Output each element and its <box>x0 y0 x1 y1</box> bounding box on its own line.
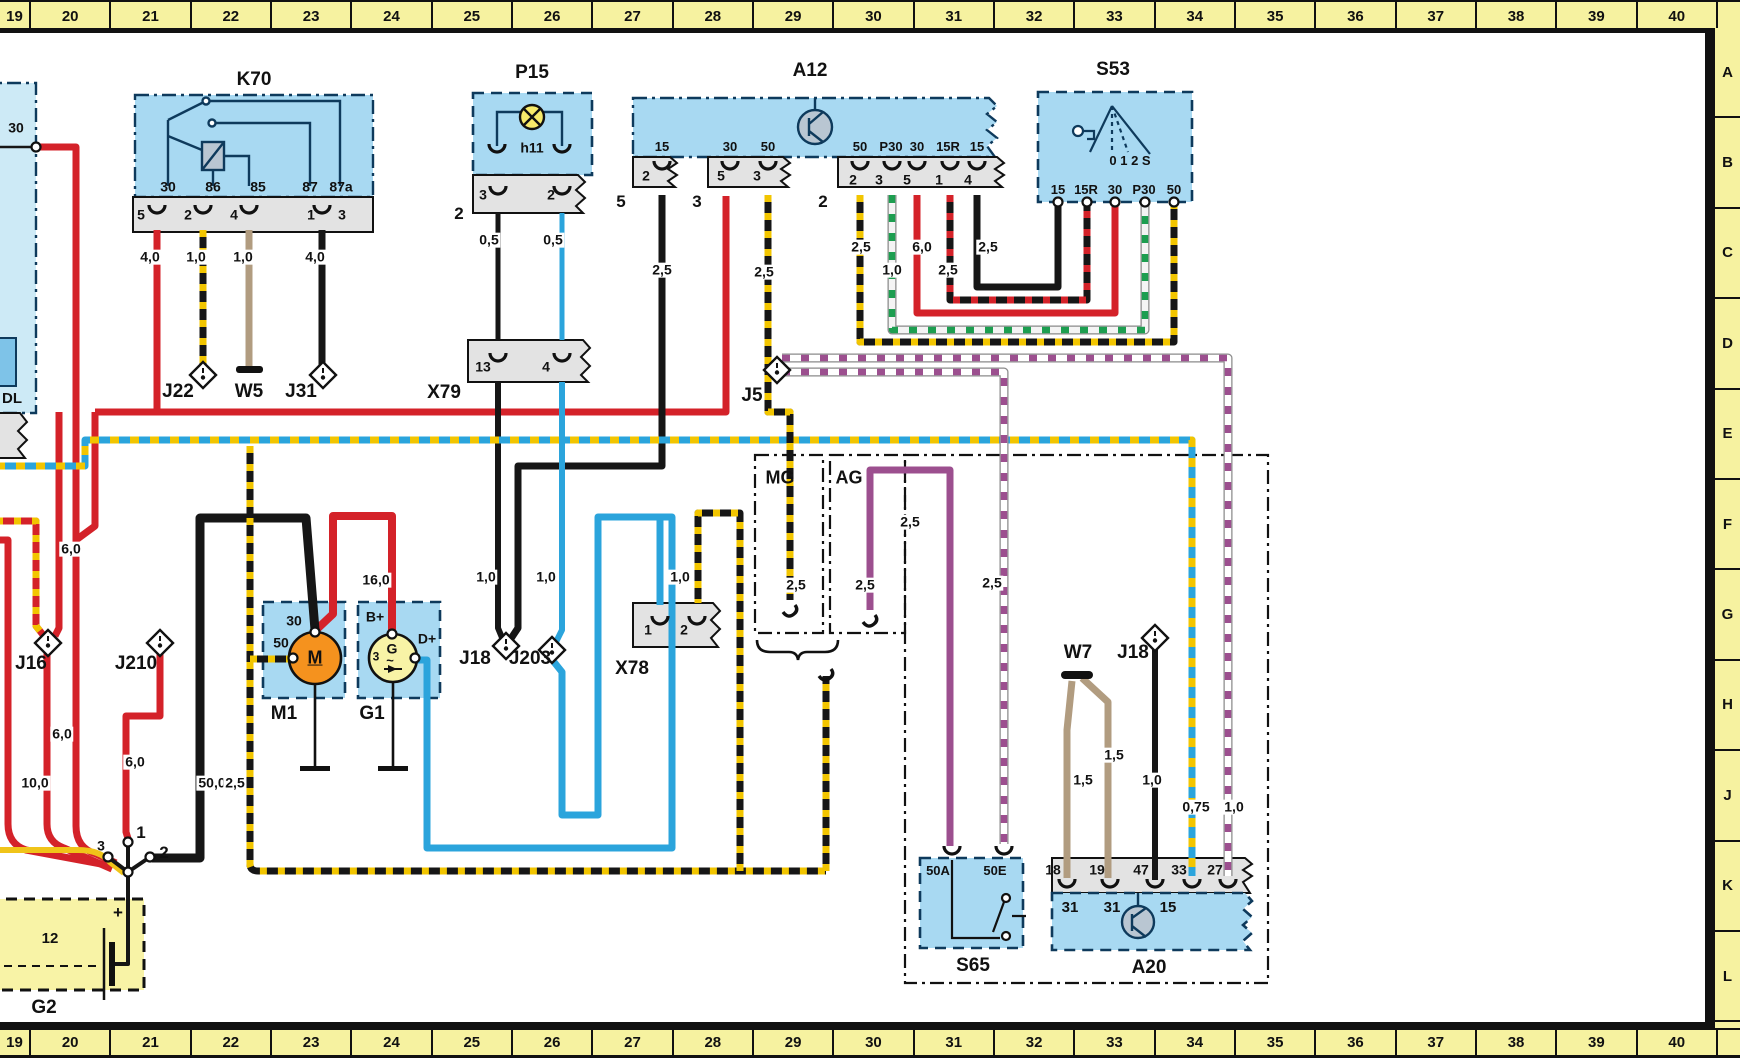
m1-terminal-30: 30 <box>286 614 302 629</box>
x79-label: X79 <box>427 383 461 403</box>
ruler-row-J: J <box>1715 751 1740 841</box>
frame-right <box>1705 28 1712 1028</box>
ruler-cell-27: 27 <box>593 2 673 30</box>
ruler-cell-30: 30 <box>834 2 914 30</box>
ruler-cell-26: 26 <box>513 2 593 30</box>
ruler-cell-35: 35 <box>1236 2 1316 30</box>
j18-label: J18 <box>459 649 491 669</box>
ruler-cell-21: 21 <box>111 1030 191 1055</box>
k70-pin-5: 5 <box>137 208 145 223</box>
s53-terminal-50: 50 <box>1167 183 1181 197</box>
ruler-cell-23: 23 <box>272 2 352 30</box>
ruler-cell-27: 27 <box>593 1030 673 1055</box>
ruler-cell-37: 37 <box>1397 2 1477 30</box>
j203-label: J203 <box>509 649 551 669</box>
x78-pin-1: 1 <box>644 623 652 638</box>
k70-terminal-87: 87 <box>302 180 318 195</box>
p15-pin-2: 2 <box>547 188 555 203</box>
ruler-cell-28: 28 <box>674 2 754 30</box>
junction-pin-1: 1 <box>136 824 145 842</box>
ruler-row-L: L <box>1715 932 1740 1022</box>
a12-connector-5: 5 <box>616 193 625 211</box>
a12-pin-4: 4 <box>964 173 972 188</box>
a12-terminal-30a: 30 <box>723 140 737 154</box>
gauge-50e-wire: 2,5 <box>980 576 1003 591</box>
a12-terminal-50a: 50 <box>761 140 775 154</box>
ruler-cell-19: 19 <box>0 1030 31 1055</box>
mg-label: MG <box>766 469 795 488</box>
k70-title: K70 <box>237 70 272 90</box>
ruler-cell-28: 28 <box>674 1030 754 1055</box>
a12-connector-3: 3 <box>692 193 701 211</box>
gauge-left-a: 6,0 <box>59 542 82 557</box>
ruler-cell-23: 23 <box>272 1030 352 1055</box>
frame-bottom <box>0 1022 1712 1028</box>
ruler-cell-36: 36 <box>1316 2 1396 30</box>
ruler-cell-21: 21 <box>111 2 191 30</box>
ruler-row-A: A <box>1715 28 1740 118</box>
k70-terminal-86: 86 <box>205 180 221 195</box>
a20-label: A20 <box>1132 958 1167 978</box>
gauge-a12-50a: 2,5 <box>752 265 775 280</box>
gauge-a20-33: 0,75 <box>1180 800 1211 815</box>
ruler-cell-38: 38 <box>1477 1030 1557 1055</box>
k70-terminal-87a: 87a <box>329 180 352 195</box>
a20-terminal-31a: 31 <box>1062 900 1079 916</box>
ruler-corner <box>1718 1030 1740 1055</box>
a20-terminal-15: 15 <box>1160 900 1177 916</box>
s53-terminal-15r: 15R <box>1074 183 1098 197</box>
gauge-j18-wire: 1,0 <box>474 570 497 585</box>
labels-layer: K70P15A12S53X79X78J22W5J31J5J16J210J18J2… <box>0 0 1740 1053</box>
a20-pin-47: 47 <box>1133 863 1149 878</box>
ruler-cell-26: 26 <box>513 1030 593 1055</box>
a12-pin-2b: 2 <box>849 173 857 188</box>
gauge-a20-27: 1,0 <box>1222 800 1245 815</box>
a20-terminal-31b: 31 <box>1104 900 1121 916</box>
gauge-k70-85: 1,0 <box>231 250 254 265</box>
k70-terminal-30: 30 <box>160 180 176 195</box>
gauge-a12-30b: 6,0 <box>910 240 933 255</box>
s53-terminal-p30: P30 <box>1132 183 1155 197</box>
ruler-corner <box>1718 2 1740 30</box>
ruler-cell-33: 33 <box>1075 1030 1155 1055</box>
gauge-a12-15a: 2,5 <box>650 263 673 278</box>
ruler-cell-39: 39 <box>1557 1030 1637 1055</box>
gauge-k70-86: 1,0 <box>184 250 207 265</box>
k70-pin-1: 1 <box>307 208 315 223</box>
x78-label: X78 <box>615 659 649 679</box>
gauge-w7-left: 1,5 <box>1071 773 1094 788</box>
j22-label: J22 <box>162 382 194 402</box>
g1-sine: ~ <box>386 654 394 668</box>
a12-terminal-15r: 15R <box>936 140 960 154</box>
g2-label: G2 <box>31 998 56 1018</box>
gauge-purple-wire: 2,5 <box>898 515 921 530</box>
bottom-ruler: 1920212223242526272829303132333435363738… <box>0 1028 1740 1058</box>
a20-pin-33: 33 <box>1171 863 1187 878</box>
a12-terminal-15a: 15 <box>655 140 669 154</box>
gauge-a12-15r: 2,5 <box>936 263 959 278</box>
j18b-label: J18 <box>1117 643 1149 663</box>
ag-label: AG <box>836 469 863 488</box>
j5-label: J5 <box>741 386 762 406</box>
ruler-row-F: F <box>1715 480 1740 570</box>
ruler-row-H: H <box>1715 661 1740 751</box>
gauge-p15-2: 0,5 <box>541 233 564 248</box>
gauge-left-b: 6,0 <box>50 727 73 742</box>
ruler-cell-24: 24 <box>352 2 432 30</box>
a12-pin-5a: 5 <box>717 169 725 184</box>
ruler-row-E: E <box>1715 390 1740 480</box>
p15-title: P15 <box>515 63 549 83</box>
gauge-p15-3: 0,5 <box>477 233 500 248</box>
a12-pin-3a: 3 <box>753 169 761 184</box>
a20-pin-27: 27 <box>1207 863 1223 878</box>
ruler-cell-40: 40 <box>1638 2 1718 30</box>
a20-pin-18: 18 <box>1045 863 1061 878</box>
ruler-cell-31: 31 <box>915 2 995 30</box>
w5-label: W5 <box>235 382 264 402</box>
wiring-diagram-page: { "meta":{"type":"automotive wiring diag… <box>0 0 1740 1053</box>
g1-pin-3: 3 <box>373 651 380 664</box>
p15-pin-3: 3 <box>479 188 487 203</box>
g1-label: G1 <box>359 704 384 724</box>
ruler-cell-36: 36 <box>1316 1030 1396 1055</box>
ruler-cell-29: 29 <box>754 1030 834 1055</box>
battery-plus: + <box>113 904 123 922</box>
ruler-cell-19: 19 <box>0 2 31 30</box>
battery-voltage: 12 <box>42 931 59 947</box>
p15-connector-2: 2 <box>454 205 463 223</box>
ruler-cell-29: 29 <box>754 2 834 30</box>
s53-title: S53 <box>1096 60 1130 80</box>
ruler-cell-20: 20 <box>31 2 111 30</box>
s53-terminal-30: 30 <box>1108 183 1122 197</box>
x79-pin-13: 13 <box>475 360 491 375</box>
a20-pin-19: 19 <box>1089 863 1105 878</box>
ruler-cell-20: 20 <box>31 1030 111 1055</box>
ruler-row-D: D <box>1715 299 1740 389</box>
s65-label: S65 <box>956 956 990 976</box>
gauge-j203-wire: 1,0 <box>534 570 557 585</box>
ruler-cell-25: 25 <box>433 1030 513 1055</box>
m1-letter: M <box>308 649 323 668</box>
m1-label: M1 <box>271 704 297 724</box>
a12-pin-3b: 3 <box>875 173 883 188</box>
ruler-cell-30: 30 <box>834 1030 914 1055</box>
ruler-cell-24: 24 <box>352 1030 432 1055</box>
a12-pin-5b: 5 <box>903 173 911 188</box>
gauge-w7-right: 1,5 <box>1102 748 1125 763</box>
gauge-j18b-wire: 1,0 <box>1140 773 1163 788</box>
j16-label: J16 <box>15 654 47 674</box>
a12-pin-1: 1 <box>935 173 943 188</box>
k70-pin-3: 3 <box>338 208 346 223</box>
gauge-16-0: 16,0 <box>360 573 391 588</box>
left-terminal-30: 30 <box>8 121 24 136</box>
a12-terminal-30b: 30 <box>910 140 924 154</box>
gauge-k70-87: 4,0 <box>303 250 326 265</box>
ruler-cell-33: 33 <box>1075 2 1155 30</box>
ruler-cell-22: 22 <box>192 1030 272 1055</box>
ruler-cell-40: 40 <box>1638 1030 1718 1055</box>
j210-label: J210 <box>115 654 157 674</box>
gauge-a12-50b: 2,5 <box>849 240 872 255</box>
gauge-j210: 6,0 <box>123 755 146 770</box>
side-ruler: ABCDEFGHJKL <box>1712 28 1740 1028</box>
gauge-left-c: 10,0 <box>19 776 50 791</box>
k70-pin-4: 4 <box>230 208 238 223</box>
ruler-cell-32: 32 <box>995 1030 1075 1055</box>
s53-positions: 0 1 2 S <box>1109 154 1150 168</box>
ruler-cell-22: 22 <box>192 2 272 30</box>
p15-lamp-id: h11 <box>520 141 543 156</box>
ruler-row-G: G <box>1715 570 1740 660</box>
ruler-cell-39: 39 <box>1557 2 1637 30</box>
ruler-row-B: B <box>1715 118 1740 208</box>
gauge-m1-50: 2,5 <box>223 776 246 791</box>
ruler-cell-31: 31 <box>915 1030 995 1055</box>
g1-terminal-bplus: B+ <box>366 610 384 625</box>
a12-terminal-p30: P30 <box>879 140 902 154</box>
gauge-x78-wire: 1,0 <box>668 570 691 585</box>
ruler-cell-34: 34 <box>1156 2 1236 30</box>
ruler-cell-35: 35 <box>1236 1030 1316 1055</box>
ruler-cell-37: 37 <box>1397 1030 1477 1055</box>
w7-label: W7 <box>1064 643 1093 663</box>
ruler-row-C: C <box>1715 209 1740 299</box>
frame-top <box>0 28 1712 32</box>
s65-terminal-50e: 50E <box>983 864 1006 878</box>
gauge-left-d: 10,0 <box>0 776 2 791</box>
ruler-cell-25: 25 <box>433 2 513 30</box>
ruler-cell-34: 34 <box>1156 1030 1236 1055</box>
gauge-ag-wire: 2,5 <box>853 578 876 593</box>
a12-title: A12 <box>793 61 828 81</box>
j31-label: J31 <box>285 382 317 402</box>
s65-terminal-50a: 50A <box>926 864 950 878</box>
junction-pin-3: 3 <box>97 839 105 854</box>
a12-pin-2a: 2 <box>642 169 650 184</box>
s53-terminal-15: 15 <box>1051 183 1065 197</box>
a12-terminal-15b: 15 <box>970 140 984 154</box>
k70-pin-2: 2 <box>184 208 192 223</box>
x78-pin-2: 2 <box>680 623 688 638</box>
ruler-cell-32: 32 <box>995 2 1075 30</box>
ruler-cell-38: 38 <box>1477 2 1557 30</box>
junction-pin-2: 2 <box>159 844 168 862</box>
gauge-k70-30: 4,0 <box>138 250 161 265</box>
gauge-a12-15b: 2,5 <box>976 240 999 255</box>
a12-connector-2: 2 <box>818 193 827 211</box>
ruler-row-K: K <box>1715 842 1740 932</box>
x79-pin-4: 4 <box>542 360 550 375</box>
g1-terminal-dplus: D+ <box>418 632 436 647</box>
k70-terminal-85: 85 <box>250 180 266 195</box>
gauge-a12-p30: 1,0 <box>880 263 903 278</box>
dl-label: DL <box>2 391 22 407</box>
m1-terminal-50: 50 <box>273 636 289 651</box>
gauge-mg-wire: 2,5 <box>784 578 807 593</box>
a12-terminal-50b: 50 <box>853 140 867 154</box>
